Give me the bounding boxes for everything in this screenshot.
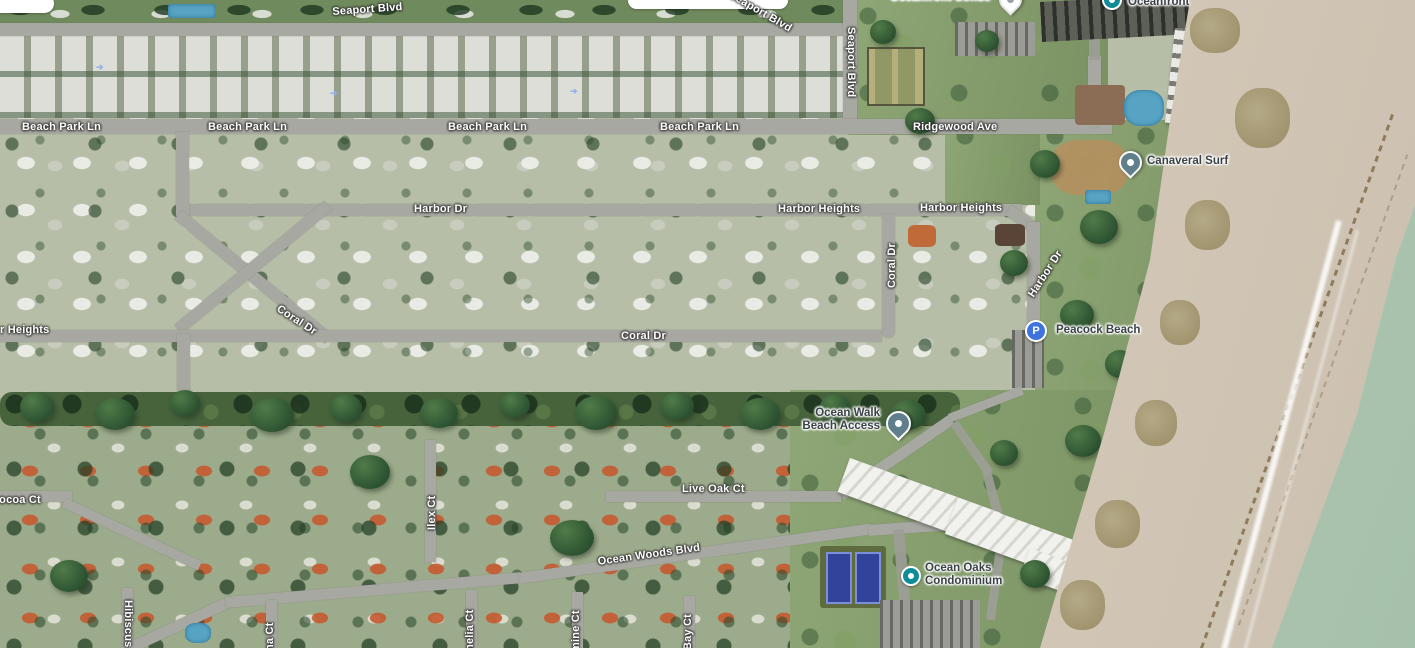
canaveral-surf-grounds <box>1052 140 1127 195</box>
tree <box>420 398 458 428</box>
road-arrow-icon: ➔ <box>330 88 338 99</box>
ocean-walk-label[interactable]: Ocean Walk Beach Access <box>786 407 880 433</box>
ocean-walk-label-line1: Ocean Walk <box>786 407 880 420</box>
road-label-hibiscus: Hibiscus <box>122 600 134 647</box>
tree <box>50 560 88 592</box>
road-seaport-blvd-top <box>0 23 856 36</box>
tree <box>20 392 54 422</box>
tree <box>95 398 135 430</box>
dune-scrub <box>1190 8 1240 53</box>
condo-rows-north <box>0 36 852 118</box>
peacock-beach-label[interactable]: Peacock Beach <box>1056 324 1140 337</box>
road-label-harbor-heights-cut: r Heights <box>0 324 49 336</box>
dune-scrub <box>1185 200 1230 250</box>
dune-scrub <box>1095 500 1140 548</box>
tree <box>975 30 999 52</box>
tree <box>500 392 530 418</box>
ocean-oaks-label-line2: Condominium <box>925 575 1002 588</box>
tree <box>1080 210 1118 244</box>
tree <box>170 390 200 416</box>
tree <box>1065 425 1101 457</box>
oceanfront-roof <box>1075 85 1125 125</box>
tennis-court-north <box>867 47 925 106</box>
road-label-harbor-dr: Harbor Dr <box>414 203 467 215</box>
ocean-walk-label-line2: Beach Access <box>786 420 880 433</box>
pool-south <box>185 623 211 643</box>
dune-scrub <box>1135 400 1177 446</box>
peacock-beach-parking-icon[interactable]: P <box>1025 320 1047 342</box>
parking-glyph: P <box>1027 322 1045 340</box>
tree <box>550 520 594 556</box>
road-label-ilex-ct: Ilex Ct <box>426 496 438 530</box>
road-label-ridgewood: Ridgewood Ave <box>913 121 997 133</box>
road-label-na-ct: na Ct <box>264 623 276 648</box>
dune-scrub <box>1160 300 1200 345</box>
road-label-coral-vertical: Coral Dr <box>886 243 898 288</box>
tree <box>350 455 390 489</box>
residential-area-south <box>0 398 900 648</box>
road-label-beach-park-3: Beach Park Ln <box>448 121 527 133</box>
satellite-map[interactable]: ➔ ➔ ➔ Seaport Blvd Seaport Blvd Seaport … <box>0 0 1415 648</box>
road-label-beach-park-1: Beach Park Ln <box>22 121 101 133</box>
tree <box>990 440 1018 466</box>
tree <box>250 398 294 432</box>
pool-top-left <box>168 4 216 18</box>
road-label-coral-mid: Coral Dr <box>621 330 666 342</box>
oceanfront-pool <box>1124 90 1164 126</box>
tree <box>1020 560 1050 588</box>
road-arrow-icon: ➔ <box>570 86 578 97</box>
canaveral-surf-label[interactable]: Canaveral Surf <box>1147 155 1228 168</box>
road-label-harbor-heights-1: Harbor Heights <box>778 203 860 215</box>
canaveral-surf-pool <box>1085 190 1111 204</box>
road-label-mine-ct: mine Ct <box>570 610 582 648</box>
cutoff-label-pill <box>0 0 54 13</box>
road-label-beach-park-4: Beach Park Ln <box>660 121 739 133</box>
tennis-court-blue-1 <box>826 552 852 604</box>
tree <box>740 398 780 430</box>
tennis-court-blue-2 <box>855 552 881 604</box>
road-arrow-icon: ➔ <box>96 62 104 73</box>
ocean-oaks-parking <box>880 600 980 648</box>
oceanfront-condo-label[interactable]: Oceanfront Condo <box>890 0 991 4</box>
tree <box>660 392 694 420</box>
tree <box>1000 250 1028 276</box>
oceanfront-label[interactable]: Oceanfront <box>1128 0 1189 9</box>
road-label-beach-park-2: Beach Park Ln <box>208 121 287 133</box>
tree <box>575 396 617 430</box>
road-label-harbor-heights-2: Harbor Heights <box>920 202 1002 214</box>
road-label-cocoa-ct: Cocoa Ct <box>0 494 41 506</box>
ocean-oaks-label-line1: Ocean Oaks <box>925 562 1002 575</box>
orange-roof-house <box>908 225 936 247</box>
dune-scrub <box>1235 88 1290 148</box>
ocean-oaks-poi-icon[interactable] <box>901 566 921 586</box>
brown-roof-house <box>995 224 1025 246</box>
tree <box>1030 150 1060 178</box>
dune-scrub <box>1060 580 1105 630</box>
ocean-oaks-label[interactable]: Ocean Oaks Condominium <box>925 562 1002 588</box>
tree <box>330 394 362 422</box>
road-label-bay-ct: Bay Ct <box>682 614 694 648</box>
road-label-live-oak: Live Oak Ct <box>682 483 745 495</box>
road-south-stub <box>177 334 190 398</box>
road-vertical-west <box>176 132 189 216</box>
road-label-seaport-vertical: Seaport Blvd <box>845 27 857 97</box>
road-label-melia-ct: melia Ct <box>464 610 476 648</box>
road-coral-dr <box>0 330 882 342</box>
tree <box>870 20 896 44</box>
